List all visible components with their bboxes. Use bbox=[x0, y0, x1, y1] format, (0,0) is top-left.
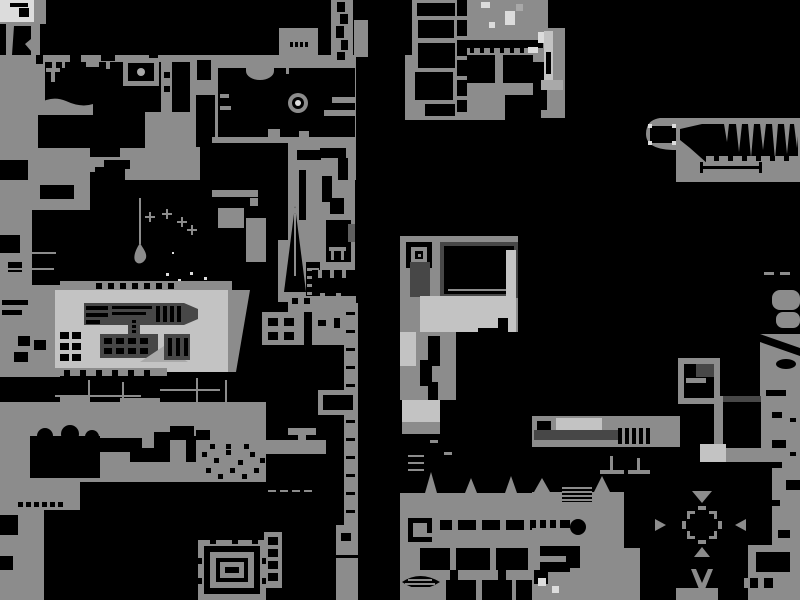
mtc-door-5 bbox=[457, 96, 467, 100]
arm-slot bbox=[546, 52, 551, 74]
mb-win-8 bbox=[140, 348, 148, 354]
bm-duct-2 bbox=[498, 570, 506, 580]
fl-bars-2 bbox=[2, 310, 22, 315]
win-grid-a1 bbox=[60, 332, 69, 339]
scallop-2 bbox=[80, 370, 86, 376]
p-step-2 bbox=[478, 328, 508, 336]
rs-notch-3 bbox=[772, 462, 782, 468]
rubble-3 bbox=[226, 450, 231, 455]
strip-tick-2 bbox=[346, 330, 355, 333]
floor-dash-1 bbox=[714, 156, 719, 161]
thin-line-1 bbox=[28, 252, 56, 254]
rx-dark-top bbox=[723, 396, 761, 402]
switchback-1 bbox=[90, 148, 120, 157]
room-a-hook-stem bbox=[51, 72, 55, 82]
mb-win-6 bbox=[116, 348, 124, 354]
train-slat-1 bbox=[618, 428, 622, 444]
bl-void-bump-2 bbox=[61, 425, 79, 443]
rubble-4 bbox=[238, 460, 243, 465]
ship-slat-2 bbox=[86, 313, 108, 317]
bc-mound-2 bbox=[594, 476, 610, 492]
compass-nub-top bbox=[698, 506, 706, 510]
m2-bar-1 bbox=[168, 338, 172, 356]
mtc-room-1 bbox=[417, 3, 455, 16]
mb-win-3 bbox=[128, 338, 136, 344]
ship-stripe-2 bbox=[112, 312, 146, 315]
factory-slope bbox=[228, 290, 250, 372]
nest-core bbox=[225, 567, 239, 573]
cage-slot-1 bbox=[268, 537, 278, 545]
rs-notch-4 bbox=[786, 480, 800, 490]
cave-rail bbox=[700, 166, 762, 169]
side-room-block bbox=[696, 364, 714, 377]
compass-west-arrow bbox=[735, 519, 746, 531]
table-door bbox=[348, 224, 355, 242]
ledge-pocket-1 bbox=[0, 160, 28, 180]
bc-mound-1 bbox=[534, 478, 550, 492]
scallop-3 bbox=[96, 370, 102, 376]
ring-floor-bump-1 bbox=[268, 129, 280, 138]
bc-band-tick-1 bbox=[536, 520, 540, 528]
nest-tick-2 bbox=[232, 540, 238, 544]
lip-teeth-3 bbox=[120, 283, 126, 289]
ship-slat-1 bbox=[86, 306, 108, 310]
bm-room-2 bbox=[456, 548, 490, 570]
mtc-room-6 bbox=[467, 55, 495, 83]
thin-line-2 bbox=[0, 268, 54, 270]
compass-bracket-bl-b bbox=[687, 531, 690, 539]
scallop-6 bbox=[144, 370, 150, 376]
bw-3 bbox=[268, 332, 278, 340]
p-room bbox=[444, 246, 514, 294]
mb-win-7 bbox=[128, 348, 136, 354]
slab-top-notch-1 bbox=[36, 55, 43, 64]
dash-line-1 bbox=[268, 490, 276, 492]
room-a-tick-2 bbox=[62, 62, 65, 68]
bw-2 bbox=[284, 318, 294, 326]
strip-tick-5 bbox=[346, 384, 355, 387]
strip-tick-12 bbox=[346, 510, 355, 513]
vine-line-2 bbox=[160, 389, 220, 391]
tube-s2 bbox=[338, 158, 348, 180]
rubble-8 bbox=[218, 474, 223, 479]
compass-east-arrow bbox=[655, 519, 666, 531]
ring-room-tab-2 bbox=[286, 68, 289, 74]
mtc-tooth-1 bbox=[470, 48, 474, 53]
cross-2b bbox=[166, 209, 168, 219]
floor-dash-5 bbox=[770, 156, 775, 161]
snake-2 bbox=[340, 14, 348, 24]
room-a-hook bbox=[46, 68, 60, 72]
ring-left-tab-2 bbox=[220, 106, 231, 110]
mtc-tooth-6 bbox=[520, 48, 524, 53]
nest-tick-4 bbox=[198, 558, 202, 564]
p-dark-bar bbox=[410, 262, 430, 297]
ship-vent-4 bbox=[177, 306, 181, 322]
train-slat-5 bbox=[646, 428, 650, 444]
bm-pillar-3 bbox=[500, 520, 506, 530]
p-dash-3 bbox=[408, 469, 424, 471]
win-grid-a5 bbox=[60, 354, 69, 361]
tower-dot-1 bbox=[132, 320, 136, 323]
mtc-tooth-3 bbox=[490, 48, 494, 53]
ship-stripe-1 bbox=[112, 306, 152, 309]
pillar-window-1 bbox=[164, 72, 170, 78]
room-a-ledge bbox=[86, 62, 99, 67]
rc-blob-1 bbox=[772, 290, 800, 310]
ring-ledge-1 bbox=[332, 97, 355, 103]
ring-core bbox=[295, 100, 301, 106]
mb-win-5 bbox=[104, 348, 112, 354]
bm-room-5 bbox=[482, 580, 512, 600]
slab-top-notch-2 bbox=[70, 55, 81, 63]
mtc-room-5 bbox=[425, 104, 455, 116]
mtc-light-3 bbox=[489, 22, 495, 28]
rubble-1 bbox=[202, 452, 207, 457]
br-pocket bbox=[756, 552, 790, 572]
hatch-row-3 bbox=[34, 502, 39, 507]
m2-bar-3 bbox=[184, 338, 188, 356]
lip-teeth-6 bbox=[156, 283, 162, 289]
strip-tick-1 bbox=[346, 312, 355, 315]
post-2-bar bbox=[628, 470, 650, 474]
bw-1 bbox=[268, 318, 278, 326]
compass-v-mark bbox=[691, 569, 713, 589]
bc-light-1 bbox=[538, 578, 546, 586]
p-col-snake-3 bbox=[428, 382, 438, 400]
cross-1b bbox=[149, 212, 151, 222]
strip-notch-1 bbox=[0, 235, 20, 253]
train-slat-2 bbox=[625, 428, 629, 444]
train-dark bbox=[534, 430, 622, 440]
band-pillar-2 bbox=[330, 270, 334, 278]
bm-spike-2 bbox=[465, 478, 477, 493]
bm-pillar-1 bbox=[452, 520, 458, 530]
speck-1 bbox=[166, 273, 169, 276]
floor-dash-2 bbox=[728, 156, 733, 161]
bm-spike-1 bbox=[425, 472, 437, 493]
roof-block bbox=[279, 28, 318, 62]
roof-vent-3 bbox=[300, 42, 303, 47]
band-pillar-1 bbox=[318, 270, 322, 278]
bc-wedge bbox=[624, 548, 640, 600]
cage-slot-3 bbox=[268, 561, 278, 569]
bl-tube-5 bbox=[186, 436, 196, 462]
compass-bracket-tl-b bbox=[687, 511, 690, 519]
compass-nub-bottom bbox=[698, 540, 706, 544]
tower-dot-3 bbox=[132, 330, 136, 333]
game-viewport[interactable] bbox=[0, 0, 800, 600]
mid-bar-2 bbox=[250, 198, 258, 206]
bridge-band bbox=[264, 440, 326, 454]
be-mark-1 bbox=[318, 320, 326, 326]
mtc-room-7 bbox=[503, 55, 533, 83]
tree-axis bbox=[294, 214, 296, 276]
tube-c bbox=[297, 150, 321, 160]
rx-interior bbox=[723, 396, 761, 448]
bc-disc bbox=[570, 519, 586, 535]
rubble-14 bbox=[244, 444, 249, 449]
lip-teeth-1 bbox=[96, 283, 102, 289]
strip-tick-7 bbox=[346, 420, 355, 423]
lip-teeth-2 bbox=[108, 283, 114, 289]
mtc-room-2 bbox=[418, 20, 454, 38]
mtc-tooth-5 bbox=[510, 48, 514, 53]
bm-duct-1 bbox=[450, 570, 458, 580]
p-light-strip bbox=[506, 250, 516, 296]
mtc-light-2 bbox=[505, 11, 515, 25]
dash-line-2 bbox=[280, 490, 288, 492]
bm-pillar-2 bbox=[476, 520, 482, 530]
nest-tick-3 bbox=[252, 540, 258, 544]
table-top bbox=[329, 247, 346, 251]
rubble-2 bbox=[214, 458, 219, 463]
pillar-window-2 bbox=[164, 86, 170, 92]
maze-k-3 bbox=[413, 537, 432, 542]
cave-corner-2 bbox=[648, 141, 652, 145]
train-slat-3 bbox=[632, 428, 636, 444]
mtc-door-1 bbox=[457, 16, 467, 20]
bl-pocket bbox=[196, 430, 210, 440]
mid-wedge bbox=[218, 208, 244, 228]
compass-bracket-br-b bbox=[714, 531, 717, 539]
m2-bar-2 bbox=[176, 338, 180, 356]
ring-floor-bump-2 bbox=[299, 131, 309, 138]
mid-gray-strip bbox=[278, 240, 288, 302]
rs-tick-2 bbox=[790, 452, 796, 456]
mtc-tooth-2 bbox=[480, 48, 484, 53]
bm-pillar-4 bbox=[524, 520, 530, 530]
nest-tick-7 bbox=[262, 578, 266, 584]
bm-room-6 bbox=[516, 580, 532, 600]
ledge-pocket-2 bbox=[40, 185, 74, 199]
p-col-light bbox=[400, 332, 416, 366]
compass-nub-left bbox=[682, 521, 686, 529]
leaf-vein-2 bbox=[405, 583, 435, 585]
strip-tick-3 bbox=[346, 348, 355, 351]
rubble-9 bbox=[230, 468, 235, 473]
p-key-dot bbox=[418, 254, 421, 257]
ring-room-tab-1 bbox=[264, 68, 268, 76]
win-grid-a4 bbox=[72, 343, 81, 350]
corner-dark-pocket bbox=[19, 8, 29, 17]
post-2-stem bbox=[637, 458, 640, 470]
cave-corner-4 bbox=[672, 141, 676, 145]
rubble-13 bbox=[226, 444, 231, 449]
nest-tick-5 bbox=[198, 578, 202, 584]
factory-floor bbox=[55, 290, 231, 372]
bl-band-left-ext bbox=[0, 478, 80, 510]
p-tick-2 bbox=[444, 452, 452, 455]
compass-down-arrow bbox=[692, 491, 712, 503]
cage-slot-2 bbox=[268, 549, 278, 557]
mid-bar-1 bbox=[212, 190, 258, 197]
mtc-door-4 bbox=[457, 76, 467, 80]
rs-notch-1 bbox=[772, 412, 782, 418]
roof-vent-1 bbox=[290, 42, 293, 47]
speck-4 bbox=[204, 277, 207, 280]
shelf-tooth-2 bbox=[304, 298, 310, 304]
machine-block bbox=[100, 334, 158, 358]
strip-tick-9 bbox=[346, 456, 355, 459]
cross-4b bbox=[191, 225, 193, 235]
rc-blob-2 bbox=[776, 312, 800, 328]
cave-corner-1 bbox=[648, 124, 652, 128]
map-canvas bbox=[0, 0, 800, 600]
hatch-stripe-4 bbox=[562, 499, 592, 501]
strip-foot-hole bbox=[341, 533, 351, 541]
hatch-stripe-1 bbox=[562, 487, 592, 489]
tower-dot-2 bbox=[132, 325, 136, 328]
switchback-4 bbox=[104, 184, 130, 194]
table-leg-1 bbox=[331, 251, 334, 260]
nest-tick-6 bbox=[262, 558, 266, 564]
rubble-7 bbox=[206, 468, 211, 473]
band-pillar-3 bbox=[342, 270, 346, 278]
mtc-light-6 bbox=[528, 47, 538, 53]
factory-left bbox=[0, 285, 60, 377]
bm-room-1 bbox=[420, 548, 450, 570]
leaf-vein-3 bbox=[410, 587, 430, 589]
compass-foot bbox=[676, 588, 718, 600]
win-grid-a3 bbox=[60, 343, 69, 350]
win-grid-a6 bbox=[72, 354, 81, 361]
maze-k-4 bbox=[427, 523, 432, 533]
strip-tick-10 bbox=[346, 474, 355, 477]
strip-tick-11 bbox=[346, 492, 355, 495]
hatch-row-6 bbox=[58, 502, 63, 507]
rubble-6 bbox=[260, 458, 265, 463]
fl-block-2 bbox=[34, 340, 46, 350]
bm-room-3 bbox=[496, 548, 528, 570]
rx-light bbox=[700, 444, 726, 462]
win-grid-a2 bbox=[72, 332, 81, 339]
scallop-5 bbox=[128, 370, 134, 376]
strip-tick-8 bbox=[346, 438, 355, 441]
p-gray-block bbox=[402, 422, 440, 434]
mtc-room-3 bbox=[418, 43, 455, 68]
compass-nub-right bbox=[718, 521, 722, 529]
snake-5 bbox=[337, 52, 345, 60]
floor-dash-3 bbox=[742, 156, 747, 161]
rs-tick-1 bbox=[790, 418, 796, 422]
ladder-strip bbox=[344, 303, 358, 531]
p-light-block bbox=[402, 400, 440, 422]
strip-tail bbox=[336, 558, 358, 600]
nest-tick-1 bbox=[210, 540, 216, 544]
bc-band-tick-3 bbox=[556, 520, 560, 528]
ship-vent-3 bbox=[170, 306, 174, 322]
mtc-light-5 bbox=[516, 4, 523, 11]
block-windows bbox=[262, 312, 304, 345]
slab-top-notch-3 bbox=[101, 55, 115, 61]
br-bar-pillar-1 bbox=[744, 578, 750, 588]
p-room-line bbox=[448, 289, 508, 291]
mtc-door-3 bbox=[457, 56, 467, 60]
train-light bbox=[556, 418, 602, 430]
rc-dash-1 bbox=[764, 272, 774, 275]
cave-rail-end-2 bbox=[759, 162, 762, 173]
cage-slot-4 bbox=[268, 573, 278, 581]
shaft-2-upper bbox=[197, 60, 211, 80]
hatch-stripe-3 bbox=[562, 495, 592, 497]
hatch-row-2 bbox=[26, 502, 31, 507]
roof-vent-2 bbox=[295, 42, 298, 47]
hatch-row-5 bbox=[50, 502, 55, 507]
rc-dash-2 bbox=[780, 272, 790, 275]
corner-dark-bar bbox=[10, 3, 28, 7]
mid-right-block bbox=[246, 218, 266, 262]
bw-4 bbox=[284, 332, 294, 340]
roof-vent-4 bbox=[305, 42, 308, 47]
cave-rail-end-1 bbox=[700, 162, 703, 173]
snake-4 bbox=[341, 40, 348, 50]
bl-bump-1 bbox=[60, 396, 90, 404]
ship-slat-3 bbox=[86, 320, 100, 324]
table-leg-2 bbox=[341, 251, 344, 260]
scallop-4 bbox=[112, 370, 118, 376]
dot-room-core bbox=[137, 68, 145, 76]
maze-k-2 bbox=[408, 523, 413, 542]
hatch-row-1 bbox=[18, 502, 23, 507]
snake-1 bbox=[337, 2, 345, 12]
lip-teeth-7 bbox=[168, 283, 174, 289]
snake-3 bbox=[336, 26, 344, 38]
lsl-hole-1 bbox=[0, 515, 18, 535]
bc-light-2 bbox=[552, 586, 559, 593]
bl-tube-3 bbox=[154, 432, 170, 462]
compass-up-arrow bbox=[694, 547, 710, 557]
wire-v bbox=[139, 198, 141, 244]
lip-teeth-4 bbox=[132, 283, 138, 289]
rubble-12 bbox=[210, 444, 215, 449]
rubble-5 bbox=[250, 452, 255, 457]
mb-win-4 bbox=[140, 338, 148, 344]
dash-line-4 bbox=[304, 490, 312, 492]
speck-3 bbox=[190, 272, 193, 275]
table-room bbox=[326, 220, 351, 262]
hatch-row-4 bbox=[42, 502, 47, 507]
vine-4 bbox=[225, 380, 227, 404]
shaft-1 bbox=[172, 62, 190, 112]
br-bar-pillar-2 bbox=[758, 578, 764, 588]
lip-teeth-5 bbox=[144, 283, 150, 289]
droplet bbox=[134, 243, 146, 263]
floor-dash-6 bbox=[784, 156, 789, 161]
side-room-shelf bbox=[686, 378, 706, 383]
t-pillar-top bbox=[288, 428, 316, 435]
cart-interior bbox=[323, 395, 353, 410]
scallop-1 bbox=[64, 370, 70, 376]
strip-tick-4 bbox=[346, 366, 355, 369]
bm-room-4 bbox=[446, 580, 476, 600]
mtc-door-2 bbox=[457, 36, 467, 40]
leaf-vein-1 bbox=[408, 579, 432, 581]
tree-crown bbox=[292, 208, 298, 214]
br-bar bbox=[735, 578, 773, 588]
arm-base bbox=[541, 80, 563, 90]
fl-block-1 bbox=[18, 336, 30, 346]
bc-band-tick-2 bbox=[546, 520, 550, 528]
bl-bump-2 bbox=[120, 398, 160, 404]
dash-line-3 bbox=[292, 490, 300, 492]
strip-notch-2 bbox=[8, 262, 22, 272]
rc-top-void bbox=[760, 268, 800, 288]
ring-ledge-2 bbox=[324, 110, 355, 116]
east-wedge bbox=[354, 20, 368, 57]
cave-box bbox=[650, 126, 676, 143]
train-slat-4 bbox=[639, 428, 643, 444]
